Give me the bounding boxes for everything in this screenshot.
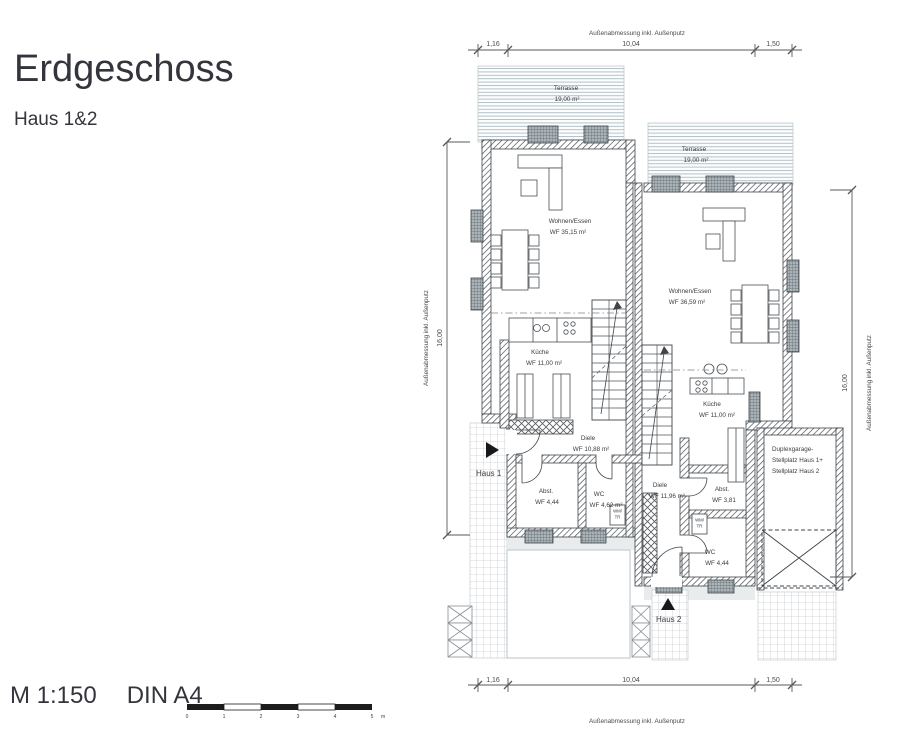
dining-table-haus1 [502,230,528,290]
terrasse2-name: Terrasse [682,146,707,153]
party-wall [626,183,642,586]
kitchen-counter-haus1 [509,318,591,342]
diele1-name: Diele [581,435,596,442]
scalebar-tick-5: 5 [371,714,374,720]
driveway-haus2 [758,592,836,660]
sofa-haus1 [518,155,562,168]
floor-plan-page: Erdgeschoss Haus 1&2 [0,0,920,736]
dim-right-value: 16,00 [842,374,849,392]
posts-right [632,606,650,657]
footer-block: M 1:150DIN A4 [10,682,233,710]
dining-table-haus2 [742,285,768,343]
scalebar-tick-4: 4 [334,714,337,720]
stairs-haus1 [592,300,626,420]
stairs-haus2 [642,345,672,465]
entrance-path-haus2 [652,590,688,660]
window-h1-north-2 [584,126,608,143]
window-h2-north-2 [706,176,734,192]
scalebar-tick-3: 3 [297,714,300,720]
dim-bottom-label: Außenabmessung inkl. Außenputz [589,718,685,725]
patio-haus1 [507,550,630,658]
wc1-area: WF 4,62 m² [590,502,623,509]
garage-label-1: Duplexgarage- [772,446,813,453]
dim-top-label: Außenabmessung inkl. Außenputz [589,30,685,37]
kueche2-area: WF 11,00 m² [699,412,735,419]
wc1-name: WC [594,491,605,498]
entrance-label-haus1: Haus 1 [476,469,502,478]
tr-label-h1: TR [615,515,621,520]
terrasse2-area: 19,00 m² [684,157,709,164]
garage-label-3: Stellplatz Haus 2 [772,468,820,475]
entrance-path-haus1 [470,423,507,658]
scalebar-tick-2: 2 [260,714,263,720]
window-h1-south-1 [525,530,553,543]
kueche2-name: Küche [703,401,721,408]
dim-bottom-3: 1,50 [766,677,780,684]
diele2-area: WF 11,96 m² [649,493,685,500]
dim-top-1: 1,16 [486,41,500,48]
sideboard-haus1 [509,420,573,434]
window-h2-south-2 [708,580,734,593]
window-h2-north-1 [652,176,680,192]
terrasse1-name: Terrasse [554,85,579,92]
wohnen2-name: Wohnen/Essen [669,288,712,295]
wc2-name: WC [705,549,716,556]
dim-bottom-2: 10,04 [622,677,640,684]
wc2-area: WF 4,44 [705,560,729,567]
drawing-scale: M 1:150 [10,682,97,709]
window-h1-west-1 [471,210,483,242]
dim-bottom-1: 1,16 [486,677,500,684]
wohnen1-name: Wohnen/Essen [549,218,592,225]
diele2-name: Diele [653,482,668,489]
window-h2-east-2 [787,320,799,352]
wohnen1-area: WF 35,15 m² [550,229,586,236]
abst1-area: WF 4,44 [535,499,559,506]
furniture-haus2 [690,208,779,482]
terrasse1-area: 19,00 m² [555,96,580,103]
dim-left-label: Außenabmessung inkl. Außenputz [423,290,430,386]
scalebar-unit: m [381,714,385,720]
window-h2-east-3 [749,392,760,422]
dim-left-value: 16,00 [437,329,444,347]
dimension-top: 1,16 10,04 1,50 Außenabmessung inkl. Auß… [468,30,802,57]
abst2-name: Abst. [715,486,730,493]
wm-tr-haus2: WM/ TR [692,514,707,534]
scalebar-tick-0: 0 [186,714,189,720]
wohnen2-area: WF 36,59 m² [669,299,705,306]
diele1-area: WF 10,88 m² [573,446,609,453]
tr-label-h2: TR [697,524,703,529]
dimension-bottom: 1,16 10,04 1,50 Außenabmessung inkl. Auß… [468,677,802,725]
floor-plan-drawing: WM/ TR WM/ TR [0,0,920,736]
side-table-haus2 [706,234,720,249]
posts-left [448,606,472,657]
kueche1-area: WF 11,00 m² [526,360,562,367]
wardrobe-haus2 [643,493,657,573]
window-h1-south-2 [581,530,606,543]
wm-label-h1: WM/ [613,509,623,514]
window-h1-west-2 [471,278,483,310]
dim-top-2: 10,04 [622,41,640,48]
garage: Duplexgarage- Stellplatz Haus 1+ Stellpl… [757,446,843,588]
garage-label-2: Stellplatz Haus 1+ [772,457,823,464]
dim-top-3: 1,50 [766,41,780,48]
window-h2-east-1 [787,260,799,292]
entrance-label-haus2: Haus 2 [656,615,682,624]
paper-format: DIN A4 [127,682,203,709]
scalebar-tick-1: 1 [223,714,226,720]
dim-right-label: Außenabmessung inkl. Außenputz [866,335,873,431]
abst1-name: Abst. [539,488,554,495]
kitchen-cabinet-haus1-b [553,374,570,418]
wm-label-h2: WM/ [695,518,705,523]
kueche1-name: Küche [531,349,549,356]
abst2-area: WF 3,81 [712,497,736,504]
side-table-haus1 [521,180,537,196]
sofa-haus2 [703,208,745,221]
dimension-left: 16,00 Außenabmessung inkl. Außenputz [423,138,470,539]
window-h1-north-1 [528,126,558,143]
